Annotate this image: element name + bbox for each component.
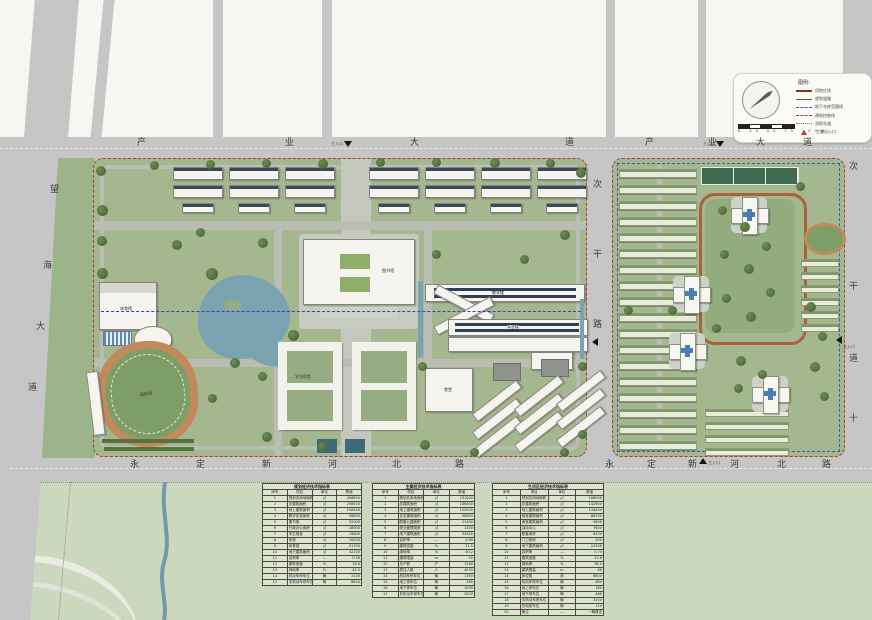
road-vertical-4	[698, 0, 706, 137]
table-cell: 地下建筑面积	[287, 550, 312, 556]
table-cell: 规划总用地面积	[398, 496, 424, 502]
building-label: 实验楼	[507, 325, 519, 329]
road-label-char: 大	[36, 323, 45, 332]
table-cell: 地上建筑面积	[287, 508, 312, 514]
residential-slab-building	[705, 435, 789, 443]
tree	[758, 370, 767, 379]
residential-slab-building	[619, 169, 697, 178]
road-label-char: 道	[849, 355, 858, 364]
tree	[97, 205, 108, 216]
road-vertical-2	[322, 0, 332, 137]
table-cell: 8600	[337, 580, 362, 586]
tree	[470, 448, 479, 457]
quad-crossbar	[287, 383, 333, 390]
canteen-building: 食堂	[425, 368, 473, 412]
underground-garage-line	[101, 311, 581, 312]
tree	[418, 362, 427, 371]
table-cell: 行政办公用房	[287, 526, 312, 532]
legend-list: 用地红线规划道路地下车库范围线建筑控制线消防车道主要出入口	[796, 87, 868, 136]
residential-slab-building	[801, 285, 839, 293]
table-cell: 非机动车停车位	[398, 592, 424, 598]
hedge-row	[104, 447, 194, 451]
road-vertical-3	[606, 0, 615, 137]
entrance-marker	[699, 458, 707, 464]
tree	[766, 288, 775, 297]
road-label-char: 河	[730, 461, 739, 470]
road-label-char: 河	[328, 461, 337, 470]
tree	[288, 330, 299, 341]
legend-label: 主要出入口	[816, 129, 836, 135]
residential-slab-building	[619, 265, 697, 274]
tree	[720, 250, 729, 259]
building-label: 教学楼	[492, 291, 504, 295]
entrance-marker	[836, 336, 842, 344]
tree	[740, 222, 750, 232]
road-vertical-1	[213, 0, 223, 137]
north-dormitory-building	[182, 203, 214, 213]
table-cell: 机动车停车位	[398, 574, 424, 580]
canal	[580, 299, 584, 359]
campus-road-h1	[94, 221, 586, 230]
table-row: 20备注—一期建设	[493, 610, 604, 616]
table-cell: 机动车停车位	[287, 574, 312, 580]
cross-tower	[752, 376, 788, 412]
residential-slab-building	[619, 233, 697, 242]
north-dormitory-building	[173, 167, 223, 180]
canal	[418, 281, 423, 357]
entrance-label: 主入口	[331, 142, 343, 146]
tree	[258, 238, 268, 248]
entrance-marker	[592, 338, 598, 346]
road-centerline	[0, 148, 872, 149]
north-dormitory-building	[285, 167, 335, 180]
tree	[576, 168, 586, 178]
legend-item: 建筑控制线	[796, 112, 868, 120]
legend-symbol-dash-red	[796, 115, 812, 116]
entrance-label: 主入口	[708, 461, 720, 465]
road-centerline	[10, 468, 872, 469]
tree	[420, 440, 430, 450]
tree	[290, 438, 299, 447]
north-dormitory-building	[369, 185, 419, 198]
north-dormitory-building	[378, 203, 410, 213]
library-courtyard	[340, 277, 370, 292]
road-label-char: 道	[28, 384, 37, 393]
tree	[150, 161, 159, 170]
tree	[206, 268, 218, 280]
tree	[258, 372, 267, 381]
tree	[560, 230, 570, 240]
road-label-char: 永	[130, 461, 139, 470]
tower-core	[689, 288, 694, 300]
legend-symbol-triangle-red	[801, 130, 807, 135]
table-cell: 一期建设	[576, 610, 604, 616]
cross-tower	[673, 276, 709, 312]
basketball-court	[541, 359, 569, 377]
legend-label: 用地红线	[815, 88, 831, 94]
road-label-char: 道	[803, 139, 812, 148]
quad-crossbar	[361, 383, 407, 390]
residential-slab-building	[801, 311, 839, 319]
road-label-char: 望	[50, 186, 59, 195]
entrance-label: 主入口	[843, 345, 855, 349]
north-dormitory-building	[537, 185, 587, 198]
tree	[810, 362, 820, 372]
residential-slab-building	[619, 249, 697, 258]
north-dormitory-building	[546, 203, 578, 213]
legend-item: 地下车库范围线	[796, 103, 868, 111]
entrance-marker	[344, 141, 352, 147]
tower-core	[685, 345, 690, 357]
lab-slab-3	[448, 337, 588, 352]
legend-item: 规划道路	[796, 95, 868, 103]
table-cell: 15	[263, 580, 288, 586]
table-cell: 非机动车停车位	[287, 580, 312, 586]
table-cell: 辆	[312, 580, 337, 586]
tower-core	[747, 209, 752, 221]
tree	[722, 294, 731, 303]
road-label-char: 干	[849, 283, 858, 292]
road-label-char: 次	[849, 163, 858, 172]
road-label-char: 永	[605, 461, 614, 470]
north-dormitory-building	[238, 203, 270, 213]
table-cell: 规划总用地面积	[287, 496, 312, 502]
tree	[172, 240, 182, 250]
road-label-char: 北	[392, 461, 401, 470]
residential-slab-building	[705, 422, 789, 430]
table-cell: 规划总用地面积	[520, 496, 548, 502]
tree	[718, 206, 727, 215]
dormitory-quad-2	[352, 342, 416, 430]
indicator-table-3: 生活区经济技术指标表序号项目单位数值1规划总用地面积㎡1680002总建筑面积㎡…	[492, 483, 604, 616]
road-label-char: 次	[593, 181, 602, 190]
campus-parcel: 图书馆 体育馆 田径场 教学楼 实验楼	[93, 158, 587, 457]
tree	[520, 255, 529, 264]
tree	[432, 250, 441, 259]
table-cell: 物业管理用房	[398, 526, 424, 532]
cross-tower	[669, 333, 705, 369]
table-cell: —	[548, 610, 576, 616]
north-arrow-needle	[748, 89, 774, 111]
indicator-table-2: 主要经济技术指标表序号项目单位数值1规划总用地面积㎡2310002总建筑面积㎡1…	[372, 483, 475, 598]
table-row: 17非机动车停车位辆2600	[373, 592, 475, 598]
north-dormitory-building	[425, 185, 475, 198]
tree	[376, 158, 385, 167]
gate-pool	[345, 439, 365, 453]
tower-core	[768, 388, 773, 400]
table-cell: 20	[493, 610, 521, 616]
tree	[762, 242, 771, 251]
legend-symbol-solid-red	[796, 90, 812, 92]
building-label: 图书馆	[382, 269, 394, 273]
tree	[97, 268, 108, 279]
north-dormitory-building	[425, 167, 475, 180]
tree	[546, 159, 555, 168]
road-label-char: 业	[285, 139, 294, 148]
tree	[734, 384, 743, 393]
road-label-char: 新	[262, 461, 271, 470]
tree	[318, 159, 328, 169]
legend-label: 建筑控制线	[815, 113, 835, 119]
north-dormitory-building	[229, 185, 279, 198]
roof-stripe	[434, 288, 576, 291]
pond-island	[224, 299, 242, 311]
legend-item: 消防车道	[796, 120, 868, 128]
tree	[206, 160, 215, 169]
table-cell: 地下建筑面积	[398, 532, 424, 538]
table-cell: 备注	[520, 610, 548, 616]
tennis-courts	[701, 167, 799, 185]
tree	[578, 362, 587, 371]
road-label-char: 路	[822, 461, 831, 470]
basketball-court	[493, 363, 521, 381]
north-dormitory-building	[229, 167, 279, 180]
mini-track	[804, 223, 846, 255]
north-dormitory-building	[490, 203, 522, 213]
north-dormitory-building	[285, 185, 335, 198]
tree	[712, 324, 721, 333]
road-label-char: 路	[593, 321, 602, 330]
library-forecourt	[319, 307, 399, 318]
table-cell: 教学实验用房	[287, 514, 312, 520]
residential-slab-building	[619, 217, 697, 226]
tree	[262, 159, 271, 168]
table-row: 15非机动车停车位辆8600	[263, 580, 362, 586]
residential-slab-building	[619, 441, 697, 450]
tree	[230, 358, 240, 368]
tree	[490, 158, 500, 168]
hedge-row	[102, 439, 194, 443]
road-label-char: 业	[708, 139, 717, 148]
tree	[744, 264, 754, 274]
north-arrow-icon	[742, 81, 780, 119]
road-label-char: 定	[196, 461, 205, 470]
legend-symbol-dash-blue	[796, 107, 812, 108]
road-label-char: 干	[593, 251, 602, 260]
legend-label: 地下车库范围线	[815, 104, 843, 110]
road-label-char: 大	[410, 139, 419, 148]
legend-label: 消防车道	[815, 121, 831, 127]
road-label-char: 产	[645, 139, 654, 148]
residential-slab-building	[619, 425, 697, 434]
north-dormitory-building	[173, 185, 223, 198]
road-label-char: 十	[849, 415, 858, 424]
tree	[560, 448, 569, 457]
library-building: 图书馆	[303, 239, 415, 305]
road-label-char: 新	[688, 461, 697, 470]
residential-slab-building	[619, 201, 697, 210]
legend-label: 规划道路	[815, 96, 831, 102]
table-cell: 住宅建筑面积	[398, 514, 424, 520]
tree	[578, 430, 587, 439]
table-cell: 非机动车停车位	[520, 598, 548, 604]
creek	[140, 482, 190, 620]
residential-slab-building	[619, 409, 697, 418]
tree	[796, 182, 805, 191]
dormitory-quad-1: 学生宿舍	[278, 342, 342, 430]
residential-slab-building	[619, 377, 697, 386]
table-cell: 2600	[449, 592, 475, 598]
road-label-char: 大	[756, 139, 765, 148]
residential-slab-building	[801, 259, 839, 267]
residential-slab-building	[705, 448, 789, 456]
tree	[806, 302, 816, 312]
legend-symbol-dot-gray	[796, 123, 812, 124]
tree	[208, 394, 217, 403]
legend-symbol-solid-dark	[796, 99, 812, 100]
tree	[624, 306, 633, 315]
road-label-char: 定	[647, 461, 656, 470]
north-dormitory-building	[369, 167, 419, 180]
tree	[262, 432, 272, 442]
residential-slab-building	[619, 185, 697, 194]
legend-card: 0 25 50 75 100m 图例: 用地红线规划道路地下车库范围线建筑控制线…	[733, 73, 872, 143]
indicator-table-1: 规划经济技术指标表序号项目单位数值1规划总用地面积㎡4566002总建筑面积㎡2…	[262, 483, 362, 586]
legend-item: 用地红线	[796, 87, 868, 95]
residential-slab-building	[619, 393, 697, 402]
road-label-char: 路	[455, 461, 464, 470]
building-label: 学生宿舍	[295, 375, 311, 379]
roof-stripe	[455, 329, 579, 332]
tree	[196, 228, 205, 237]
road-label-char: 海	[43, 262, 52, 271]
table-cell: 17	[373, 592, 399, 598]
master-plan-canvas: 图书馆 体育馆 田径场 教学楼 实验楼	[0, 0, 872, 620]
tree	[668, 306, 677, 315]
north-dormitory-building	[294, 203, 326, 213]
legend-item: 主要出入口	[796, 128, 868, 136]
tree	[820, 392, 829, 401]
north-dormitory-building	[481, 167, 531, 180]
road-label-char: 产	[137, 139, 146, 148]
table-cell: 辆	[424, 592, 450, 598]
gym-roof	[100, 283, 156, 293]
legend-title: 图例:	[798, 79, 810, 86]
residential-slab-building	[801, 324, 839, 332]
road-label-char: 道	[565, 139, 574, 148]
building-label: 食堂	[444, 388, 452, 392]
library-courtyard	[340, 254, 370, 269]
tree	[818, 332, 827, 341]
tree	[736, 356, 746, 366]
tree	[746, 312, 756, 322]
gymnasium-building: 体育馆	[99, 282, 157, 330]
tree	[432, 158, 441, 167]
table-cell: 地上建筑面积	[398, 508, 424, 514]
table-cell: 配套公建面积	[398, 520, 424, 526]
north-dormitory-building	[434, 203, 466, 213]
lab-slab-2: 实验楼	[448, 319, 588, 336]
tree	[96, 166, 106, 176]
entrance-marker	[716, 141, 724, 147]
north-dormitory-building	[481, 185, 531, 198]
tree	[318, 442, 327, 451]
residential-slab-building	[801, 272, 839, 280]
tree	[97, 236, 107, 246]
road-label-char: 北	[777, 461, 786, 470]
